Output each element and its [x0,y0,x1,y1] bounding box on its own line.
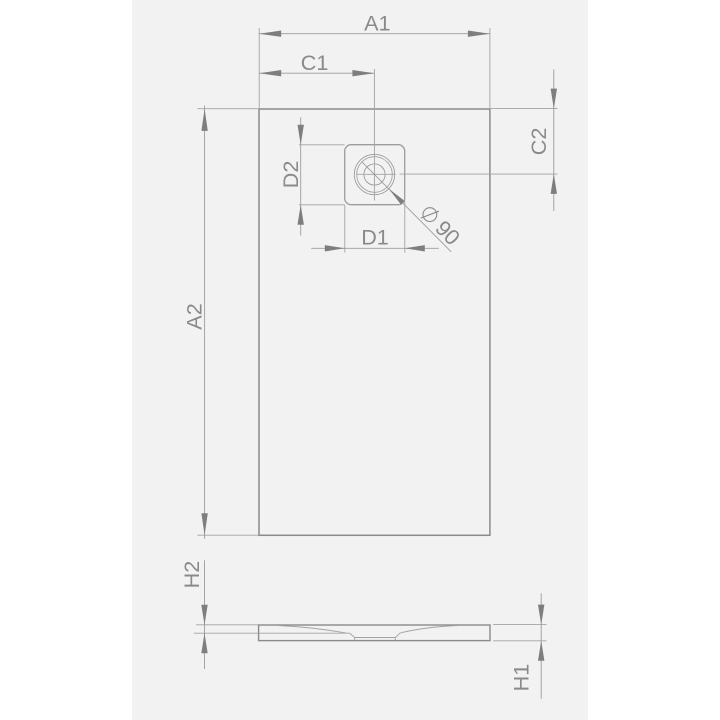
svg-text:D2: D2 [278,161,303,189]
svg-text:H2: H2 [179,561,204,589]
svg-text:A1: A1 [364,10,390,35]
svg-text:C2: C2 [526,128,551,156]
svg-text:C1: C1 [301,50,329,75]
svg-text:H1: H1 [509,664,534,692]
svg-text:A2: A2 [182,303,207,329]
svg-text:D1: D1 [361,225,389,250]
